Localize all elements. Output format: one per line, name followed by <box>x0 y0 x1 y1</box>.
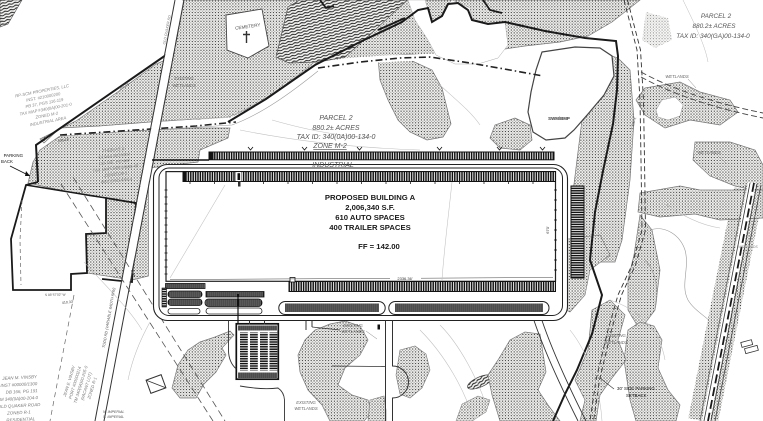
svg-text:SETBACK: SETBACK <box>626 393 647 398</box>
svg-text:EXISTING: EXISTING <box>174 76 194 81</box>
svg-text:FF = 142.00: FF = 142.00 <box>358 242 400 251</box>
svg-text:S 88°57'02" W: S 88°57'02" W <box>45 293 66 297</box>
svg-text:670': 670' <box>545 226 550 234</box>
svg-text:400 TRAILER SPACES: 400 TRAILER SPACES <box>329 223 410 232</box>
svg-text:EXISTING: EXISTING <box>296 400 316 405</box>
svg-text:TAX ID: 340(0A)00-134-0: TAX ID: 340(0A)00-134-0 <box>297 134 376 141</box>
svg-text:880.2± ACRES: 880.2± ACRES <box>692 23 736 30</box>
svg-text:WETLANDS: WETLANDS <box>665 74 688 79</box>
svg-text:2,006,340 S.F.: 2,006,340 S.F. <box>345 203 395 212</box>
svg-text:INDUSTRIAL: INDUSTRIAL <box>312 162 354 169</box>
svg-text:N. IMPERIAL: N. IMPERIAL <box>103 410 124 414</box>
svg-text:WETLANDS: WETLANDS <box>738 245 758 249</box>
svg-text:880.2± ACRES: 880.2± ACRES <box>312 125 359 132</box>
svg-text:TAX ID: 340(GA)00-134-0: TAX ID: 340(GA)00-134-0 <box>676 33 750 40</box>
svg-text:PROPOSED BUILDING A: PROPOSED BUILDING A <box>325 193 416 202</box>
svg-text:PARKING: PARKING <box>4 153 24 158</box>
svg-text:PARCEL 2: PARCEL 2 <box>701 13 732 20</box>
svg-text:RESIDENTIAL: RESIDENTIAL <box>6 416 36 421</box>
svg-text:S. IMPERIAL: S. IMPERIAL <box>103 415 124 419</box>
svg-text:PARCEL 2: PARCEL 2 <box>319 115 352 122</box>
svg-text:BACK: BACK <box>1 159 13 164</box>
svg-text:WETLANDS: WETLANDS <box>697 150 720 155</box>
svg-text:EXISTING: EXISTING <box>606 333 626 338</box>
svg-text:SWM/BMP: SWM/BMP <box>548 116 570 121</box>
svg-text:EXISTING: EXISTING <box>343 323 363 328</box>
svg-text:WETLANDS: WETLANDS <box>341 329 364 334</box>
svg-text:30' SIDE PARKING: 30' SIDE PARKING <box>617 386 655 391</box>
svg-text:WETLANDS: WETLANDS <box>172 83 195 88</box>
svg-text:WETLANDS: WETLANDS <box>294 406 317 411</box>
svg-text:ZONE M-2: ZONE M-2 <box>312 143 347 150</box>
svg-text:610 AUTO SPACES: 610 AUTO SPACES <box>335 213 405 222</box>
svg-text:2336.36': 2336.36' <box>397 276 412 281</box>
svg-text:WETLANDS: WETLANDS <box>604 340 627 345</box>
